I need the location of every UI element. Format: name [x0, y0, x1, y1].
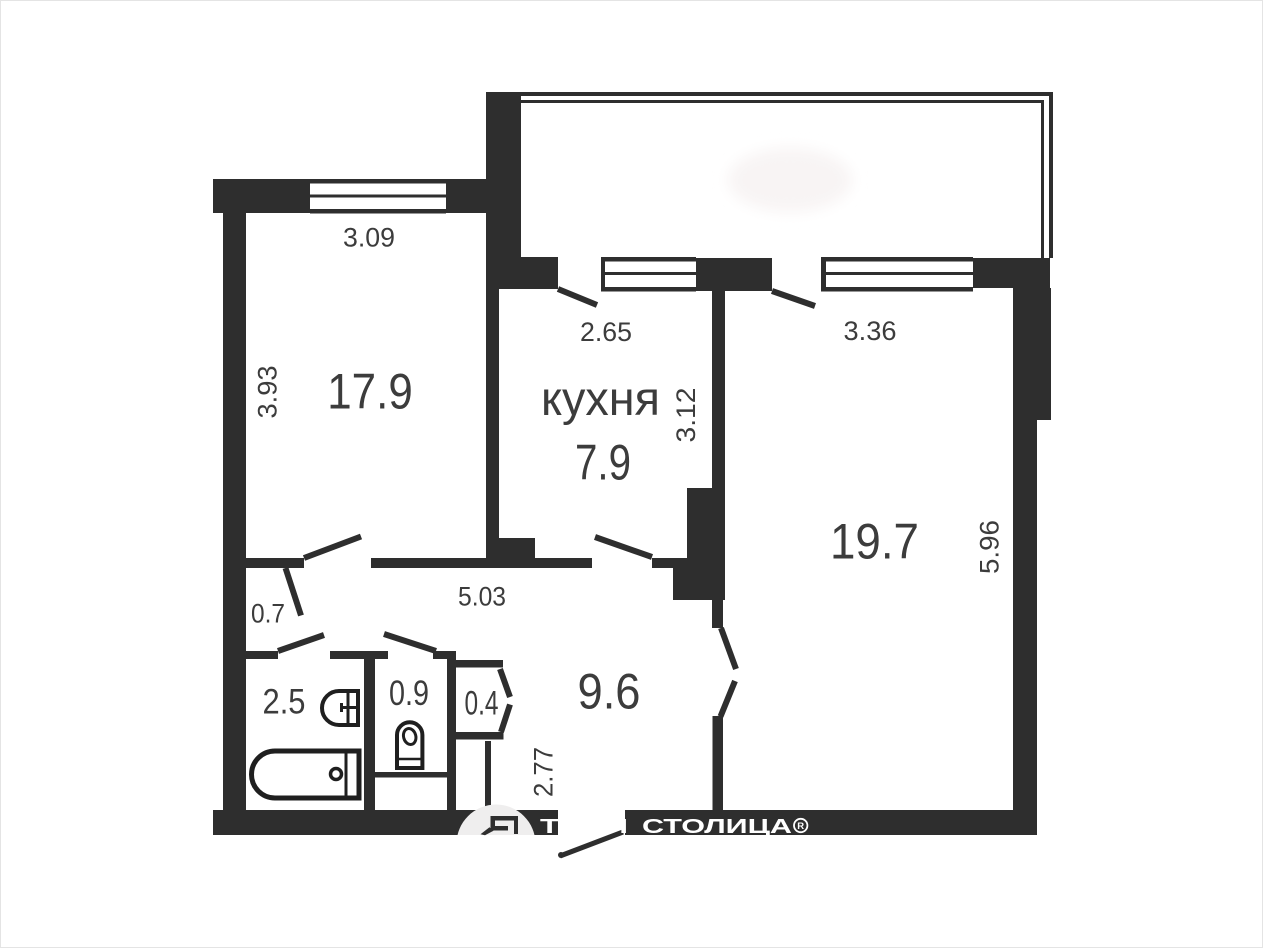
svg-text:7.9: 7.9 [575, 434, 631, 491]
svg-text:2.65: 2.65 [580, 317, 632, 347]
svg-text:кухня: кухня [541, 373, 660, 426]
svg-text:5.03: 5.03 [458, 582, 506, 612]
svg-text:ТВОЯ: ТВОЯ [540, 815, 628, 838]
svg-text:0.9: 0.9 [389, 673, 429, 713]
svg-text:СТОЛИЦА: СТОЛИЦА [642, 815, 792, 838]
svg-text:0.7: 0.7 [251, 599, 285, 629]
svg-text:3.36: 3.36 [844, 316, 897, 346]
svg-text:3.93: 3.93 [253, 366, 283, 419]
svg-text:2.77: 2.77 [529, 747, 559, 797]
svg-text:5.96: 5.96 [975, 520, 1005, 574]
svg-text:2.5: 2.5 [263, 682, 306, 722]
svg-text:19.7: 19.7 [830, 514, 919, 570]
svg-text:9.6: 9.6 [578, 664, 641, 720]
svg-text:3.12: 3.12 [671, 388, 701, 443]
svg-text:R: R [797, 821, 804, 832]
svg-text:17.9: 17.9 [327, 363, 413, 420]
svg-text:3.09: 3.09 [343, 223, 395, 253]
svg-text:0.4: 0.4 [465, 685, 499, 723]
